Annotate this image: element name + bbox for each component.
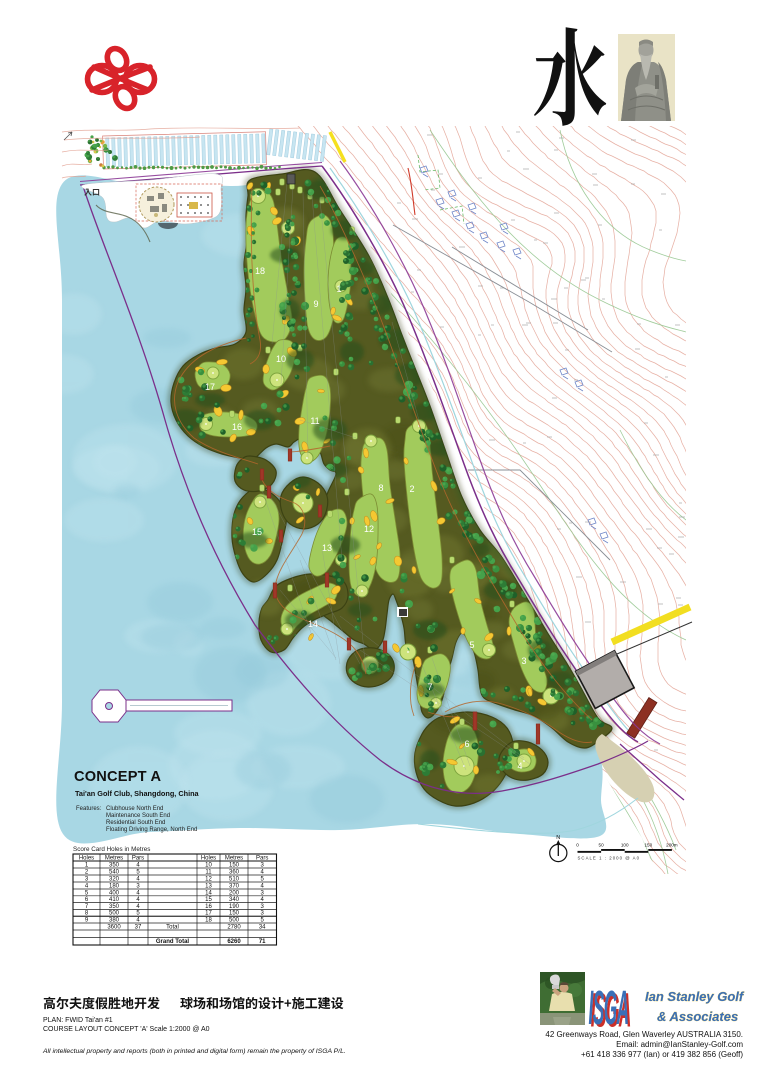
svg-text:380: 380 bbox=[109, 918, 120, 924]
svg-text:15: 15 bbox=[252, 527, 262, 537]
svg-text:540: 540 bbox=[109, 869, 120, 875]
svg-text:350: 350 bbox=[109, 862, 120, 868]
svg-text:Score Card Holes in Metres: Score Card Holes in Metres bbox=[73, 846, 150, 853]
svg-text:9: 9 bbox=[313, 299, 318, 309]
svg-text:16: 16 bbox=[232, 422, 242, 432]
svg-text:100: 100 bbox=[621, 843, 629, 848]
svg-text:1: 1 bbox=[336, 284, 341, 294]
svg-text:2: 2 bbox=[409, 484, 414, 494]
svg-text:3: 3 bbox=[521, 656, 526, 666]
svg-text:18: 18 bbox=[205, 918, 212, 924]
svg-text:400: 400 bbox=[109, 890, 120, 896]
svg-text:7: 7 bbox=[427, 682, 432, 692]
svg-text:+61 418 336 977 (Ian) or 419 3: +61 418 336 977 (Ian) or 419 382 856 (Ge… bbox=[581, 1050, 743, 1059]
svg-text:510: 510 bbox=[229, 876, 240, 882]
svg-text:SCALE 1 : 2000 @ A0: SCALE 1 : 2000 @ A0 bbox=[578, 856, 641, 861]
svg-text:Pars: Pars bbox=[132, 855, 144, 861]
svg-text:CONCEPT A: CONCEPT A bbox=[74, 769, 161, 785]
svg-text:Metres: Metres bbox=[105, 855, 123, 861]
svg-text:& Associates: & Associates bbox=[657, 1009, 738, 1024]
svg-text:13: 13 bbox=[205, 883, 212, 889]
svg-text:Holes: Holes bbox=[79, 855, 94, 861]
svg-text:10: 10 bbox=[205, 862, 212, 868]
svg-text:16: 16 bbox=[205, 904, 212, 910]
svg-text:Pars: Pars bbox=[256, 855, 268, 861]
svg-text:15: 15 bbox=[205, 897, 212, 903]
svg-text:8: 8 bbox=[378, 483, 383, 493]
svg-text:18: 18 bbox=[255, 266, 265, 276]
svg-text:6260: 6260 bbox=[227, 939, 241, 945]
svg-text:14: 14 bbox=[308, 619, 318, 629]
svg-text:17: 17 bbox=[205, 911, 212, 917]
svg-text:370: 370 bbox=[229, 883, 240, 889]
svg-text:Residential South End: Residential South End bbox=[106, 820, 165, 826]
svg-text:0: 0 bbox=[576, 843, 579, 848]
svg-text:PLAN: FWID Tai'an #1: PLAN: FWID Tai'an #1 bbox=[43, 1017, 113, 1024]
svg-text:50: 50 bbox=[599, 843, 605, 848]
svg-text:500: 500 bbox=[229, 918, 240, 924]
svg-text:Clubhouse North End: Clubhouse North End bbox=[106, 806, 163, 812]
svg-text:2780: 2780 bbox=[227, 924, 241, 930]
svg-text:6: 6 bbox=[464, 739, 469, 749]
svg-text:10: 10 bbox=[276, 354, 286, 364]
svg-text:11: 11 bbox=[205, 869, 212, 875]
svg-text:COURSE LAYOUT CONCEPT 'A' Scal: COURSE LAYOUT CONCEPT 'A' Scale 1:2000 @… bbox=[43, 1026, 210, 1033]
svg-text:350: 350 bbox=[109, 904, 120, 910]
svg-text:150: 150 bbox=[229, 911, 240, 917]
svg-text:17: 17 bbox=[205, 382, 215, 392]
svg-text:34: 34 bbox=[259, 924, 266, 930]
svg-text:360: 360 bbox=[229, 869, 240, 875]
svg-text:12: 12 bbox=[364, 524, 374, 534]
svg-text:Grand Total: Grand Total bbox=[156, 939, 190, 945]
svg-text:14: 14 bbox=[205, 890, 212, 896]
svg-text:Floating Driving Range, North: Floating Driving Range, North End bbox=[106, 827, 197, 833]
svg-text:42 Greenways Road, Glen Waverl: 42 Greenways Road, Glen Waverley AUSTRAL… bbox=[545, 1030, 743, 1039]
svg-text:All intellectual property and: All intellectual property and reports (b… bbox=[42, 1048, 346, 1055]
svg-text:320: 320 bbox=[109, 876, 120, 882]
svg-text:12: 12 bbox=[205, 876, 212, 882]
svg-text:180: 180 bbox=[109, 883, 120, 889]
svg-text:150: 150 bbox=[644, 843, 652, 848]
svg-text:4: 4 bbox=[517, 761, 522, 771]
svg-text:5: 5 bbox=[469, 640, 474, 650]
svg-text:Metres: Metres bbox=[225, 855, 243, 861]
svg-text:ISGA: ISGA bbox=[589, 980, 629, 1035]
svg-text:Holes: Holes bbox=[201, 855, 216, 861]
svg-text:200m: 200m bbox=[666, 843, 678, 848]
svg-text:Features:: Features: bbox=[76, 806, 102, 812]
svg-text:Ian Stanley Golf: Ian Stanley Golf bbox=[645, 989, 745, 1004]
svg-text:11: 11 bbox=[310, 416, 319, 426]
svg-text:Total: Total bbox=[166, 924, 179, 930]
svg-text:Email: admin@IanStanley-Golf.c: Email: admin@IanStanley-Golf.com bbox=[616, 1040, 743, 1049]
svg-text:71: 71 bbox=[259, 939, 266, 945]
svg-text:410: 410 bbox=[109, 897, 120, 903]
svg-text:Tai'an Golf Club, Shangdong, C: Tai'an Golf Club, Shangdong, China bbox=[75, 789, 200, 798]
svg-text:340: 340 bbox=[229, 897, 240, 903]
svg-text:37: 37 bbox=[135, 924, 142, 930]
svg-text:13: 13 bbox=[322, 543, 332, 553]
svg-text:500: 500 bbox=[109, 911, 120, 917]
svg-text:Maintenance South End: Maintenance South End bbox=[106, 813, 170, 819]
svg-text:150: 150 bbox=[229, 862, 240, 868]
svg-text:N: N bbox=[556, 835, 560, 841]
svg-text:200: 200 bbox=[229, 890, 240, 896]
svg-text:190: 190 bbox=[229, 904, 240, 910]
svg-text:3600: 3600 bbox=[107, 924, 121, 930]
